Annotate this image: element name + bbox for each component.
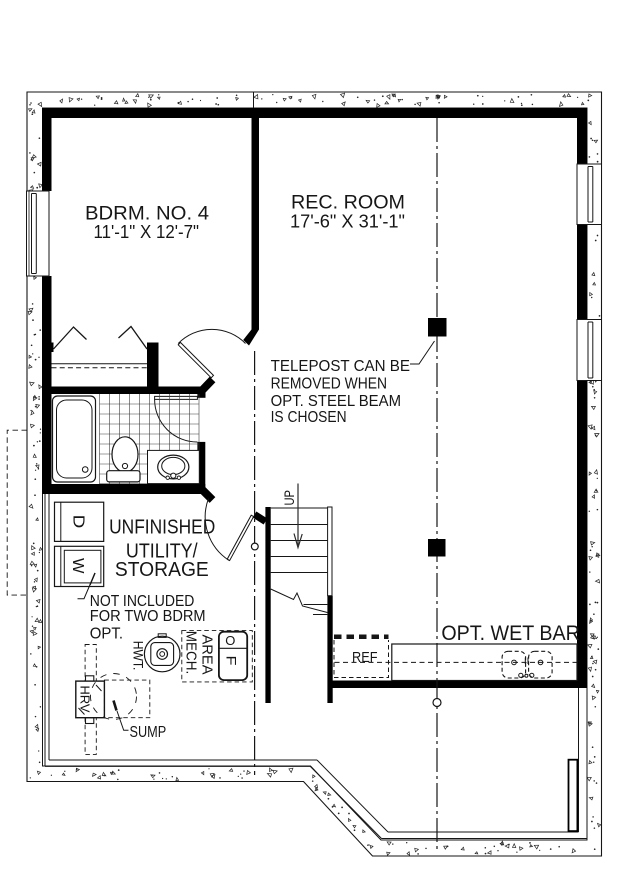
svg-text:OPT.: OPT. (90, 626, 123, 643)
svg-text:TELEPOST CAN BE: TELEPOST CAN BE (271, 358, 410, 375)
svg-text:D: D (70, 515, 87, 529)
svg-text:17'-6" X 31'-1": 17'-6" X 31'-1" (290, 212, 405, 232)
svg-text:OPT. STEEL BEAM: OPT. STEEL BEAM (271, 393, 401, 410)
svg-text:UP: UP (281, 490, 297, 506)
svg-text:REC. ROOM: REC. ROOM (291, 192, 405, 213)
svg-text:OPT. WET BAR: OPT. WET BAR (441, 622, 579, 645)
svg-text:STORAGE: STORAGE (115, 559, 209, 581)
svg-text:REMOVED WHEN: REMOVED WHEN (271, 376, 387, 393)
svg-text:MECH.: MECH. (183, 631, 200, 675)
svg-text:FOR TWO BDRM: FOR TWO BDRM (90, 608, 206, 625)
svg-text:UNFINISHED: UNFINISHED (109, 516, 215, 538)
svg-text:AREA: AREA (199, 635, 216, 675)
svg-text:11'-1" X 12'-7": 11'-1" X 12'-7" (94, 222, 200, 242)
svg-text:SUMP: SUMP (130, 724, 167, 741)
svg-text:F: F (224, 656, 240, 666)
svg-text:REF: REF (352, 649, 378, 666)
svg-text:HWT.: HWT. (130, 641, 145, 671)
svg-text:W: W (69, 558, 86, 574)
svg-text:IS CHOSEN: IS CHOSEN (271, 409, 347, 426)
svg-text:O: O (225, 633, 235, 648)
